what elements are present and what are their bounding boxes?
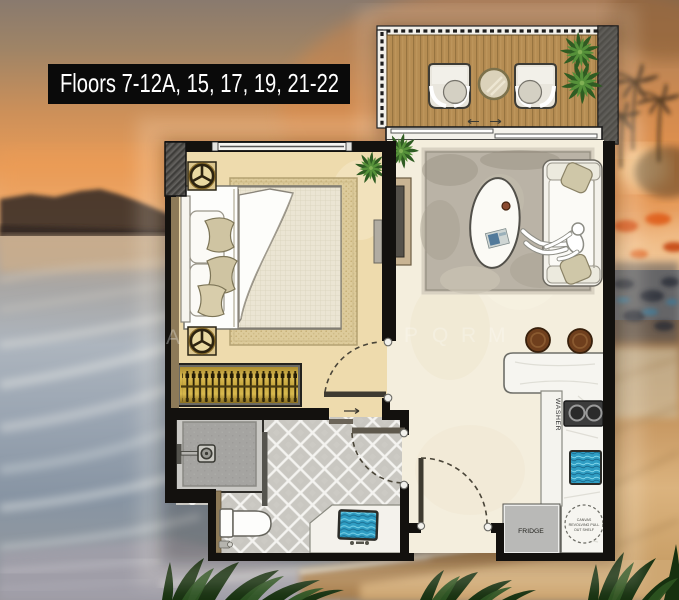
svg-text:Q: Q: [432, 324, 448, 347]
svg-text:R: R: [461, 324, 476, 347]
svg-text:A: A: [166, 326, 180, 349]
svg-text:FRIDGE: FRIDGE: [518, 528, 544, 535]
svg-text:CANVAS: CANVAS: [577, 518, 592, 522]
svg-text:OUT SHELF: OUT SHELF: [574, 528, 595, 532]
svg-text:REVOLVING PULL: REVOLVING PULL: [569, 523, 600, 527]
svg-text:M: M: [488, 324, 506, 347]
svg-text:Floors 7-12A, 15, 17, 19, 21-2: Floors 7-12A, 15, 17, 19, 21-22: [60, 68, 339, 98]
svg-text:P: P: [404, 324, 418, 347]
svg-text:WASHER: WASHER: [554, 398, 561, 431]
